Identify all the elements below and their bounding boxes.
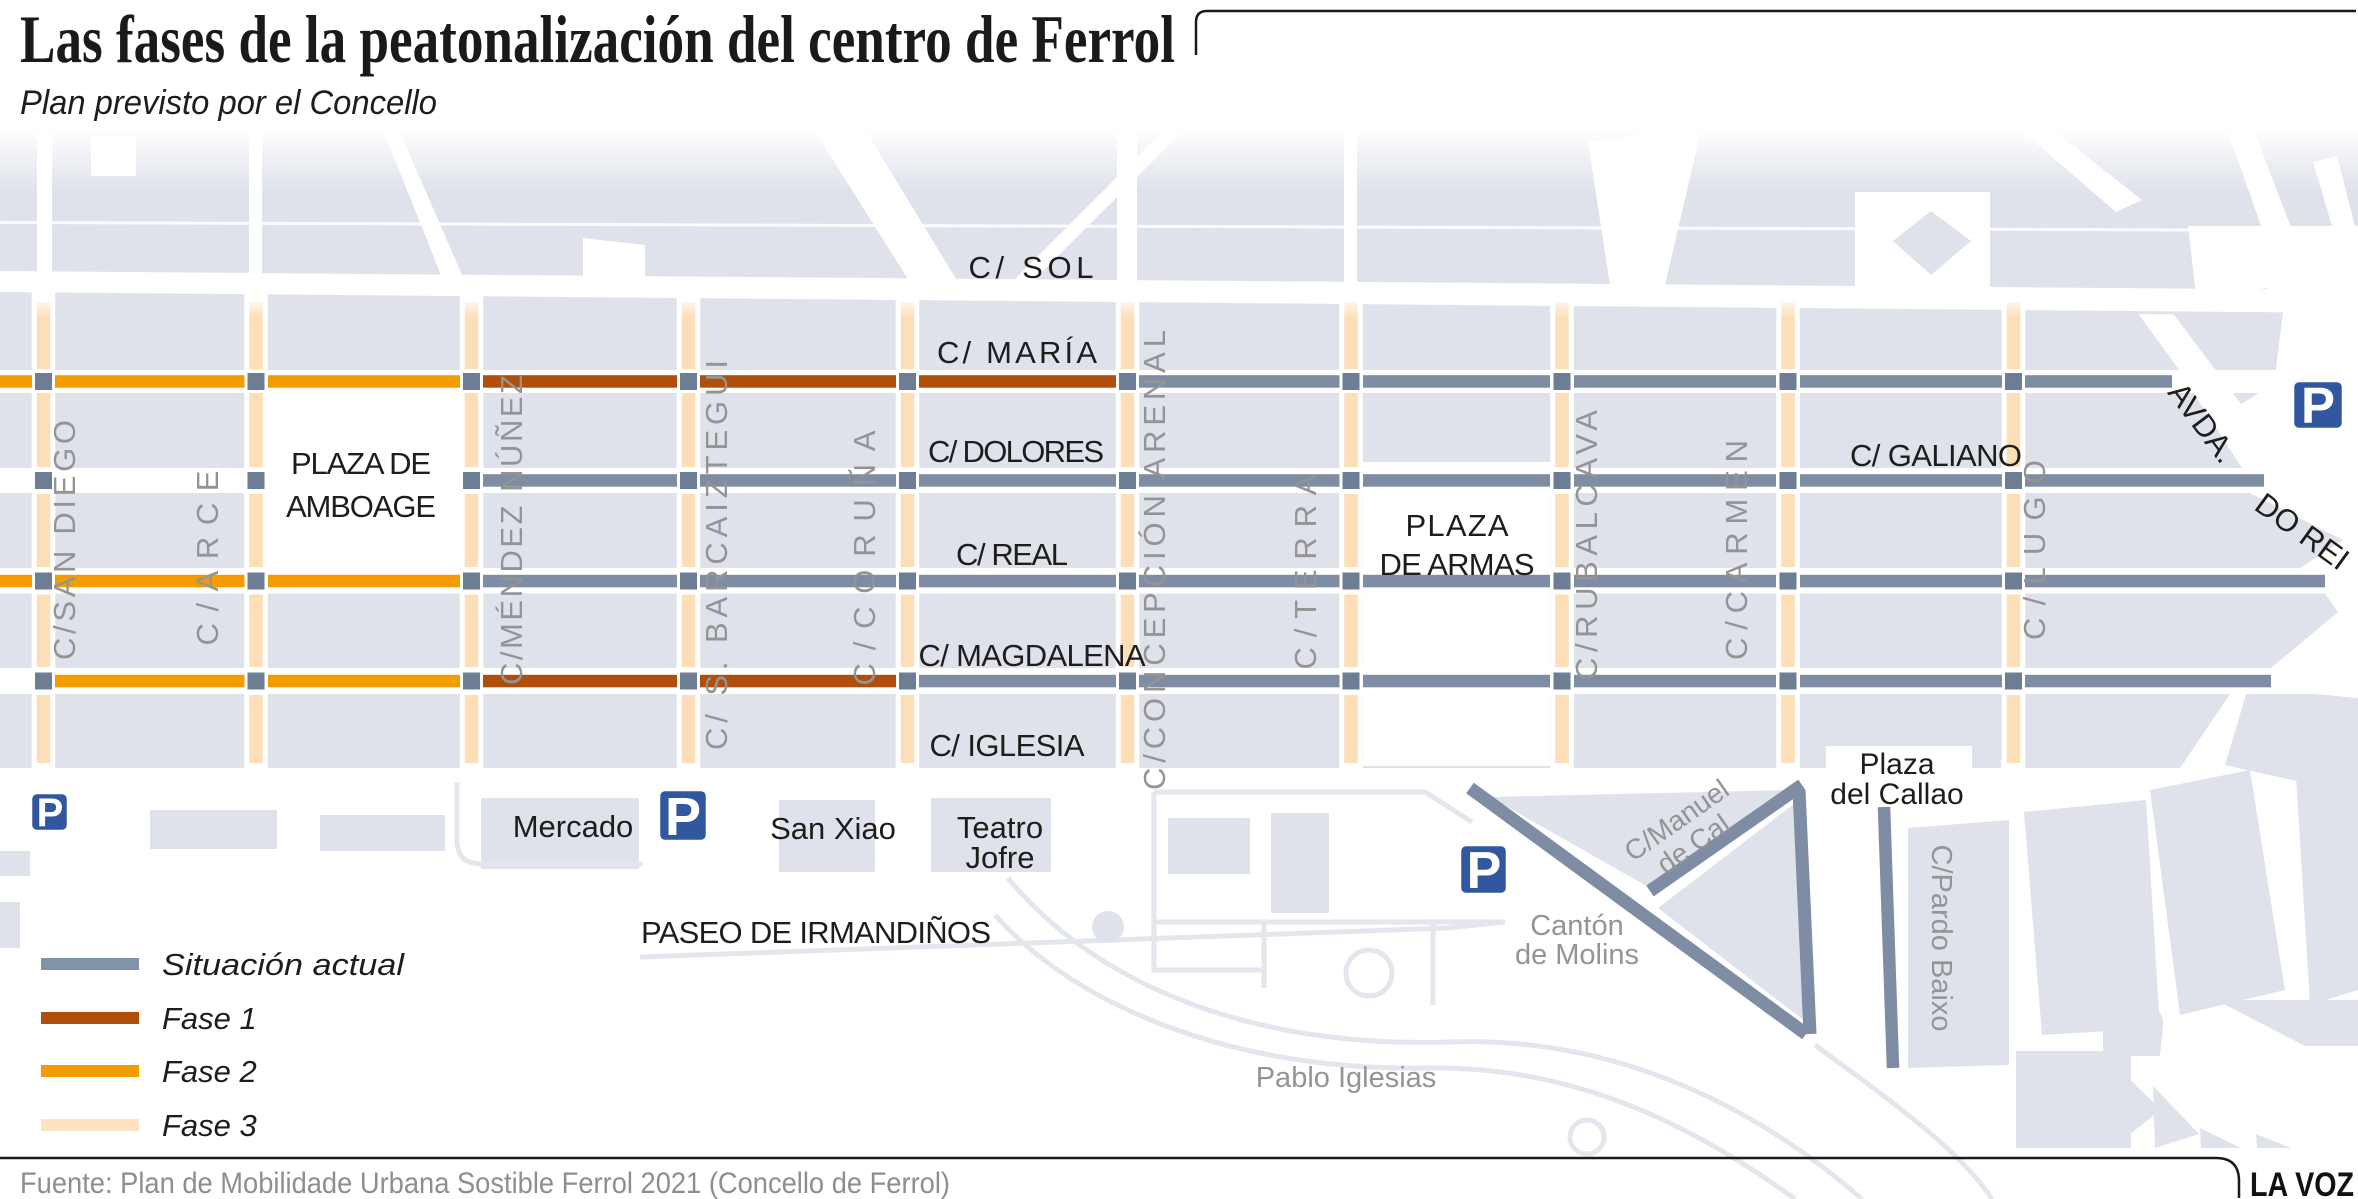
svg-text:de Molins: de Molins bbox=[1515, 939, 1639, 971]
svg-text:Fase 2: Fase 2 bbox=[162, 1054, 257, 1089]
svg-text:Plaza: Plaza bbox=[1859, 748, 1934, 781]
svg-text:P: P bbox=[665, 787, 701, 847]
svg-text:C/ IGLESIA: C/ IGLESIA bbox=[930, 728, 1085, 763]
svg-text:PLAZA: PLAZA bbox=[1406, 508, 1509, 543]
svg-text:Plan previsto por el Concello: Plan previsto por el Concello bbox=[20, 84, 437, 122]
svg-text:C/Pardo Baixo: C/Pardo Baixo bbox=[1925, 845, 1957, 1032]
svg-text:Mercado: Mercado bbox=[513, 809, 634, 844]
svg-text:C/CARMEN: C/CARMEN bbox=[1719, 440, 1754, 660]
svg-text:AMBOAGE: AMBOAGE bbox=[286, 489, 436, 524]
svg-text:Pablo Iglesias: Pablo Iglesias bbox=[1256, 1062, 1437, 1094]
svg-text:Fase 3: Fase 3 bbox=[162, 1108, 257, 1143]
svg-text:C/ S. BARCAIZTEGUI: C/ S. BARCAIZTEGUI bbox=[699, 360, 734, 750]
svg-text:Fase 1: Fase 1 bbox=[162, 1001, 257, 1036]
svg-text:P: P bbox=[37, 791, 64, 835]
svg-text:C/ REAL: C/ REAL bbox=[956, 537, 1068, 572]
svg-text:PLAZA DE: PLAZA DE bbox=[291, 446, 431, 481]
svg-text:P: P bbox=[1467, 842, 1502, 900]
svg-text:del Callao: del Callao bbox=[1830, 778, 1963, 811]
svg-text:Las fases de la peatonalizació: Las fases de la peatonalización del cent… bbox=[20, 1, 1175, 77]
svg-text:C/ DOLORES: C/ DOLORES bbox=[928, 434, 1104, 469]
svg-text:C/CONCEPCIÓN ARENAL: C/CONCEPCIÓN ARENAL bbox=[1137, 330, 1172, 790]
svg-text:P: P bbox=[2301, 377, 2335, 434]
svg-text:Fuente: Plan de Mobilidade Urb: Fuente: Plan de Mobilidade Urbana Sostib… bbox=[20, 1167, 950, 1199]
svg-text:C/MÉNDEZ NÚÑEZ: C/MÉNDEZ NÚÑEZ bbox=[494, 375, 529, 685]
svg-text:C/ MAGDALENA: C/ MAGDALENA bbox=[919, 638, 1146, 673]
svg-text:Cantón: Cantón bbox=[1530, 910, 1624, 942]
svg-text:San Xiao: San Xiao bbox=[770, 811, 896, 846]
svg-text:DE ARMAS: DE ARMAS bbox=[1380, 547, 1535, 582]
svg-text:LA VOZ: LA VOZ bbox=[2250, 1166, 2354, 1199]
svg-text:C/ GALIANO: C/ GALIANO bbox=[1850, 438, 2022, 473]
svg-text:Jofre: Jofre bbox=[966, 840, 1035, 875]
svg-text:Situación actual: Situación actual bbox=[162, 947, 405, 982]
svg-text:PASEO DE IRMANDIÑOS: PASEO DE IRMANDIÑOS bbox=[641, 915, 991, 950]
